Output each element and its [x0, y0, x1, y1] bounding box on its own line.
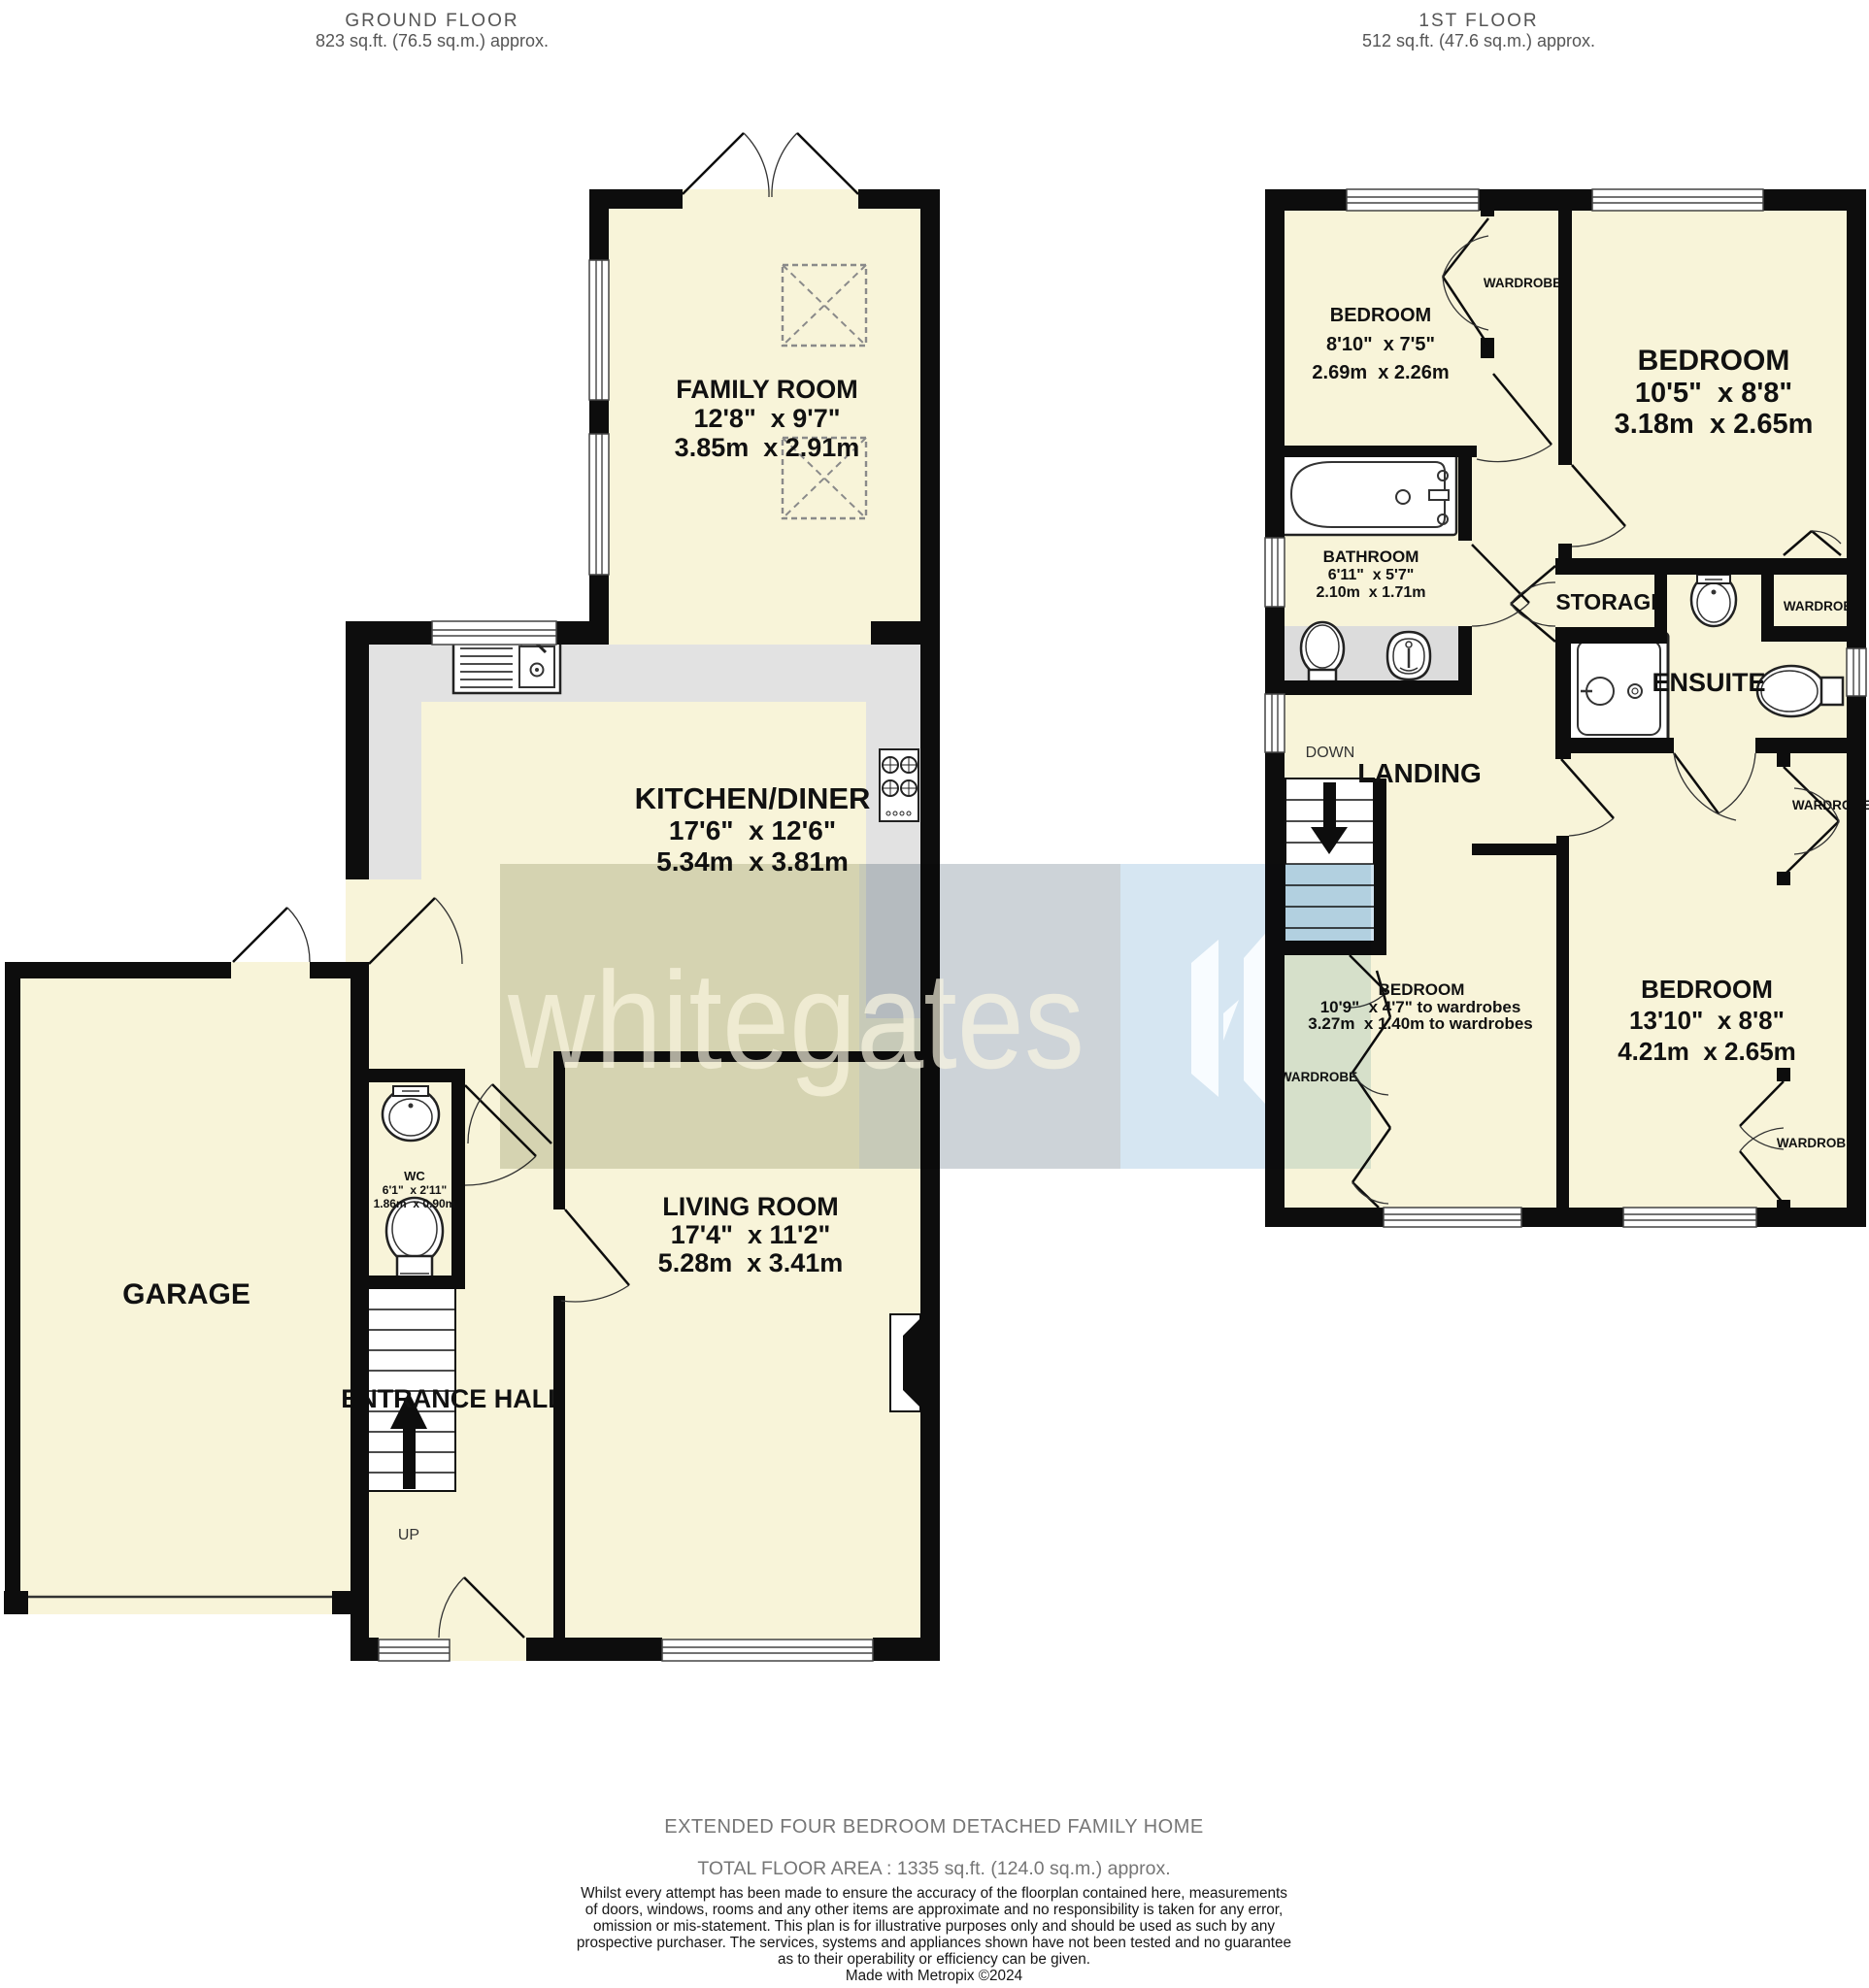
svg-text:512 sq.ft. (47.6 sq.m.) approx: 512 sq.ft. (47.6 sq.m.) approx.: [1362, 31, 1595, 50]
svg-text:3.18m x 2.65m: 3.18m x 2.65m: [1615, 409, 1814, 440]
svg-text:5.28m x 3.41m: 5.28m x 3.41m: [658, 1248, 844, 1277]
svg-text:10'5" x 8'8": 10'5" x 8'8": [1635, 378, 1792, 409]
svg-text:1.86m x 0.90m: 1.86m x 0.90m: [374, 1197, 456, 1210]
svg-text:823 sq.ft. (76.5 sq.m.) approx: 823 sq.ft. (76.5 sq.m.) approx.: [316, 31, 549, 50]
svg-text:BEDROOM: BEDROOM: [1330, 305, 1431, 326]
svg-text:1ST FLOOR: 1ST FLOOR: [1418, 11, 1538, 31]
svg-text:13'10" x 8'8": 13'10" x 8'8": [1629, 1006, 1785, 1035]
svg-text:6'11" x 5'7": 6'11" x 5'7": [1328, 567, 1415, 583]
svg-text:EXTENDED FOUR BEDROOM DETACHED: EXTENDED FOUR BEDROOM DETACHED FAMILY HO…: [664, 1816, 1204, 1838]
svg-text:FAMILY ROOM: FAMILY ROOM: [676, 375, 858, 404]
svg-text:2.69m x 2.26m: 2.69m x 2.26m: [1312, 362, 1449, 383]
svg-text:STORAGE: STORAGE: [1555, 589, 1665, 614]
svg-text:GARAGE: GARAGE: [122, 1278, 250, 1310]
svg-text:DOWN: DOWN: [1306, 745, 1355, 761]
svg-text:TOTAL FLOOR AREA : 1335 sq.ft.: TOTAL FLOOR AREA : 1335 sq.ft. (124.0 sq…: [697, 1858, 1170, 1879]
svg-text:4.21m x 2.65m: 4.21m x 2.65m: [1618, 1037, 1796, 1066]
svg-text:prospective purchaser. The ser: prospective purchaser. The services, sys…: [577, 1935, 1291, 1951]
svg-text:Made with Metropix ©2024: Made with Metropix ©2024: [846, 1968, 1023, 1984]
svg-text:KITCHEN/DINER: KITCHEN/DINER: [635, 781, 871, 815]
svg-text:BEDROOM: BEDROOM: [1638, 345, 1790, 377]
svg-text:17'4" x 11'2": 17'4" x 11'2": [671, 1220, 831, 1249]
svg-text:LANDING: LANDING: [1357, 758, 1482, 788]
svg-text:BEDROOM: BEDROOM: [1641, 975, 1773, 1004]
svg-text:ENTRANCE HALL: ENTRANCE HALL: [341, 1384, 564, 1413]
svg-text:WARDROBE: WARDROBE: [1777, 1136, 1854, 1150]
svg-text:Whilst every attempt has been: Whilst every attempt has been made to en…: [581, 1885, 1287, 1902]
svg-text:WC: WC: [404, 1169, 425, 1183]
svg-text:12'8" x 9'7": 12'8" x 9'7": [693, 404, 840, 433]
svg-text:ENSUITE: ENSUITE: [1652, 668, 1765, 697]
svg-text:BEDROOM: BEDROOM: [1379, 980, 1465, 999]
svg-text:17'6" x 12'6": 17'6" x 12'6": [669, 815, 836, 845]
svg-text:whitegates: whitegates: [507, 944, 1085, 1098]
svg-text:as to their operability or eff: as to their operability or efficiency ca…: [778, 1951, 1090, 1968]
svg-text:omission or mis-statement. Thi: omission or mis-statement. This plan is …: [593, 1918, 1275, 1935]
svg-text:3.85m x 2.91m: 3.85m x 2.91m: [675, 433, 860, 462]
svg-text:of doors, windows, rooms and a: of doors, windows, rooms and any other i…: [585, 1902, 1283, 1918]
svg-text:2.10m x 1.71m: 2.10m x 1.71m: [1317, 584, 1426, 601]
svg-text:UP: UP: [398, 1527, 419, 1543]
svg-text:GROUND FLOOR: GROUND FLOOR: [345, 11, 518, 31]
svg-text:BATHROOM: BATHROOM: [1323, 547, 1419, 566]
svg-text:WARDROBE: WARDROBE: [1484, 276, 1561, 290]
svg-text:LIVING ROOM: LIVING ROOM: [662, 1192, 839, 1221]
svg-text:8'10" x 7'5": 8'10" x 7'5": [1326, 334, 1435, 355]
svg-text:6'1" x 2'11": 6'1" x 2'11": [383, 1183, 447, 1197]
